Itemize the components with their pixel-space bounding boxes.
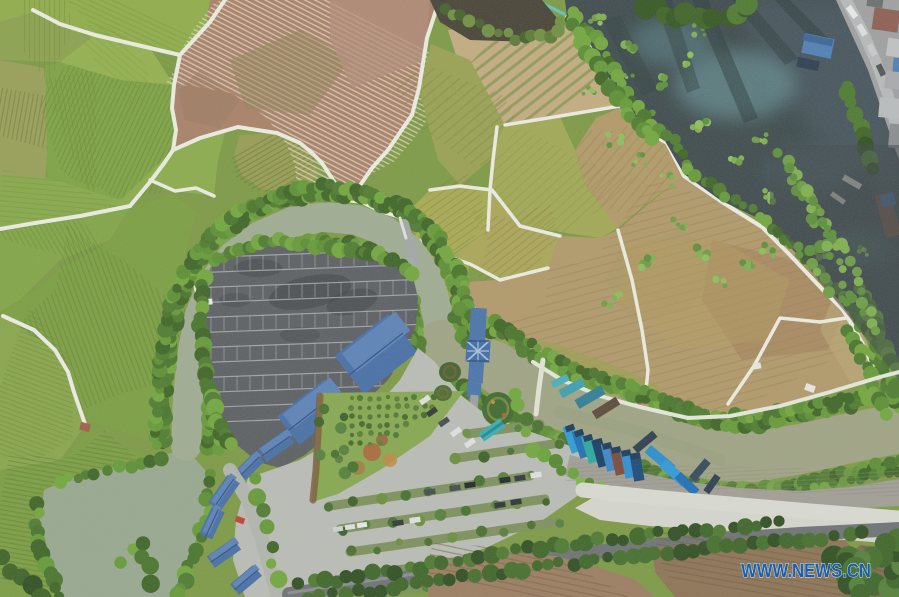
svg-text:WWW.NEWS.CN: WWW.NEWS.CN — [741, 560, 871, 582]
